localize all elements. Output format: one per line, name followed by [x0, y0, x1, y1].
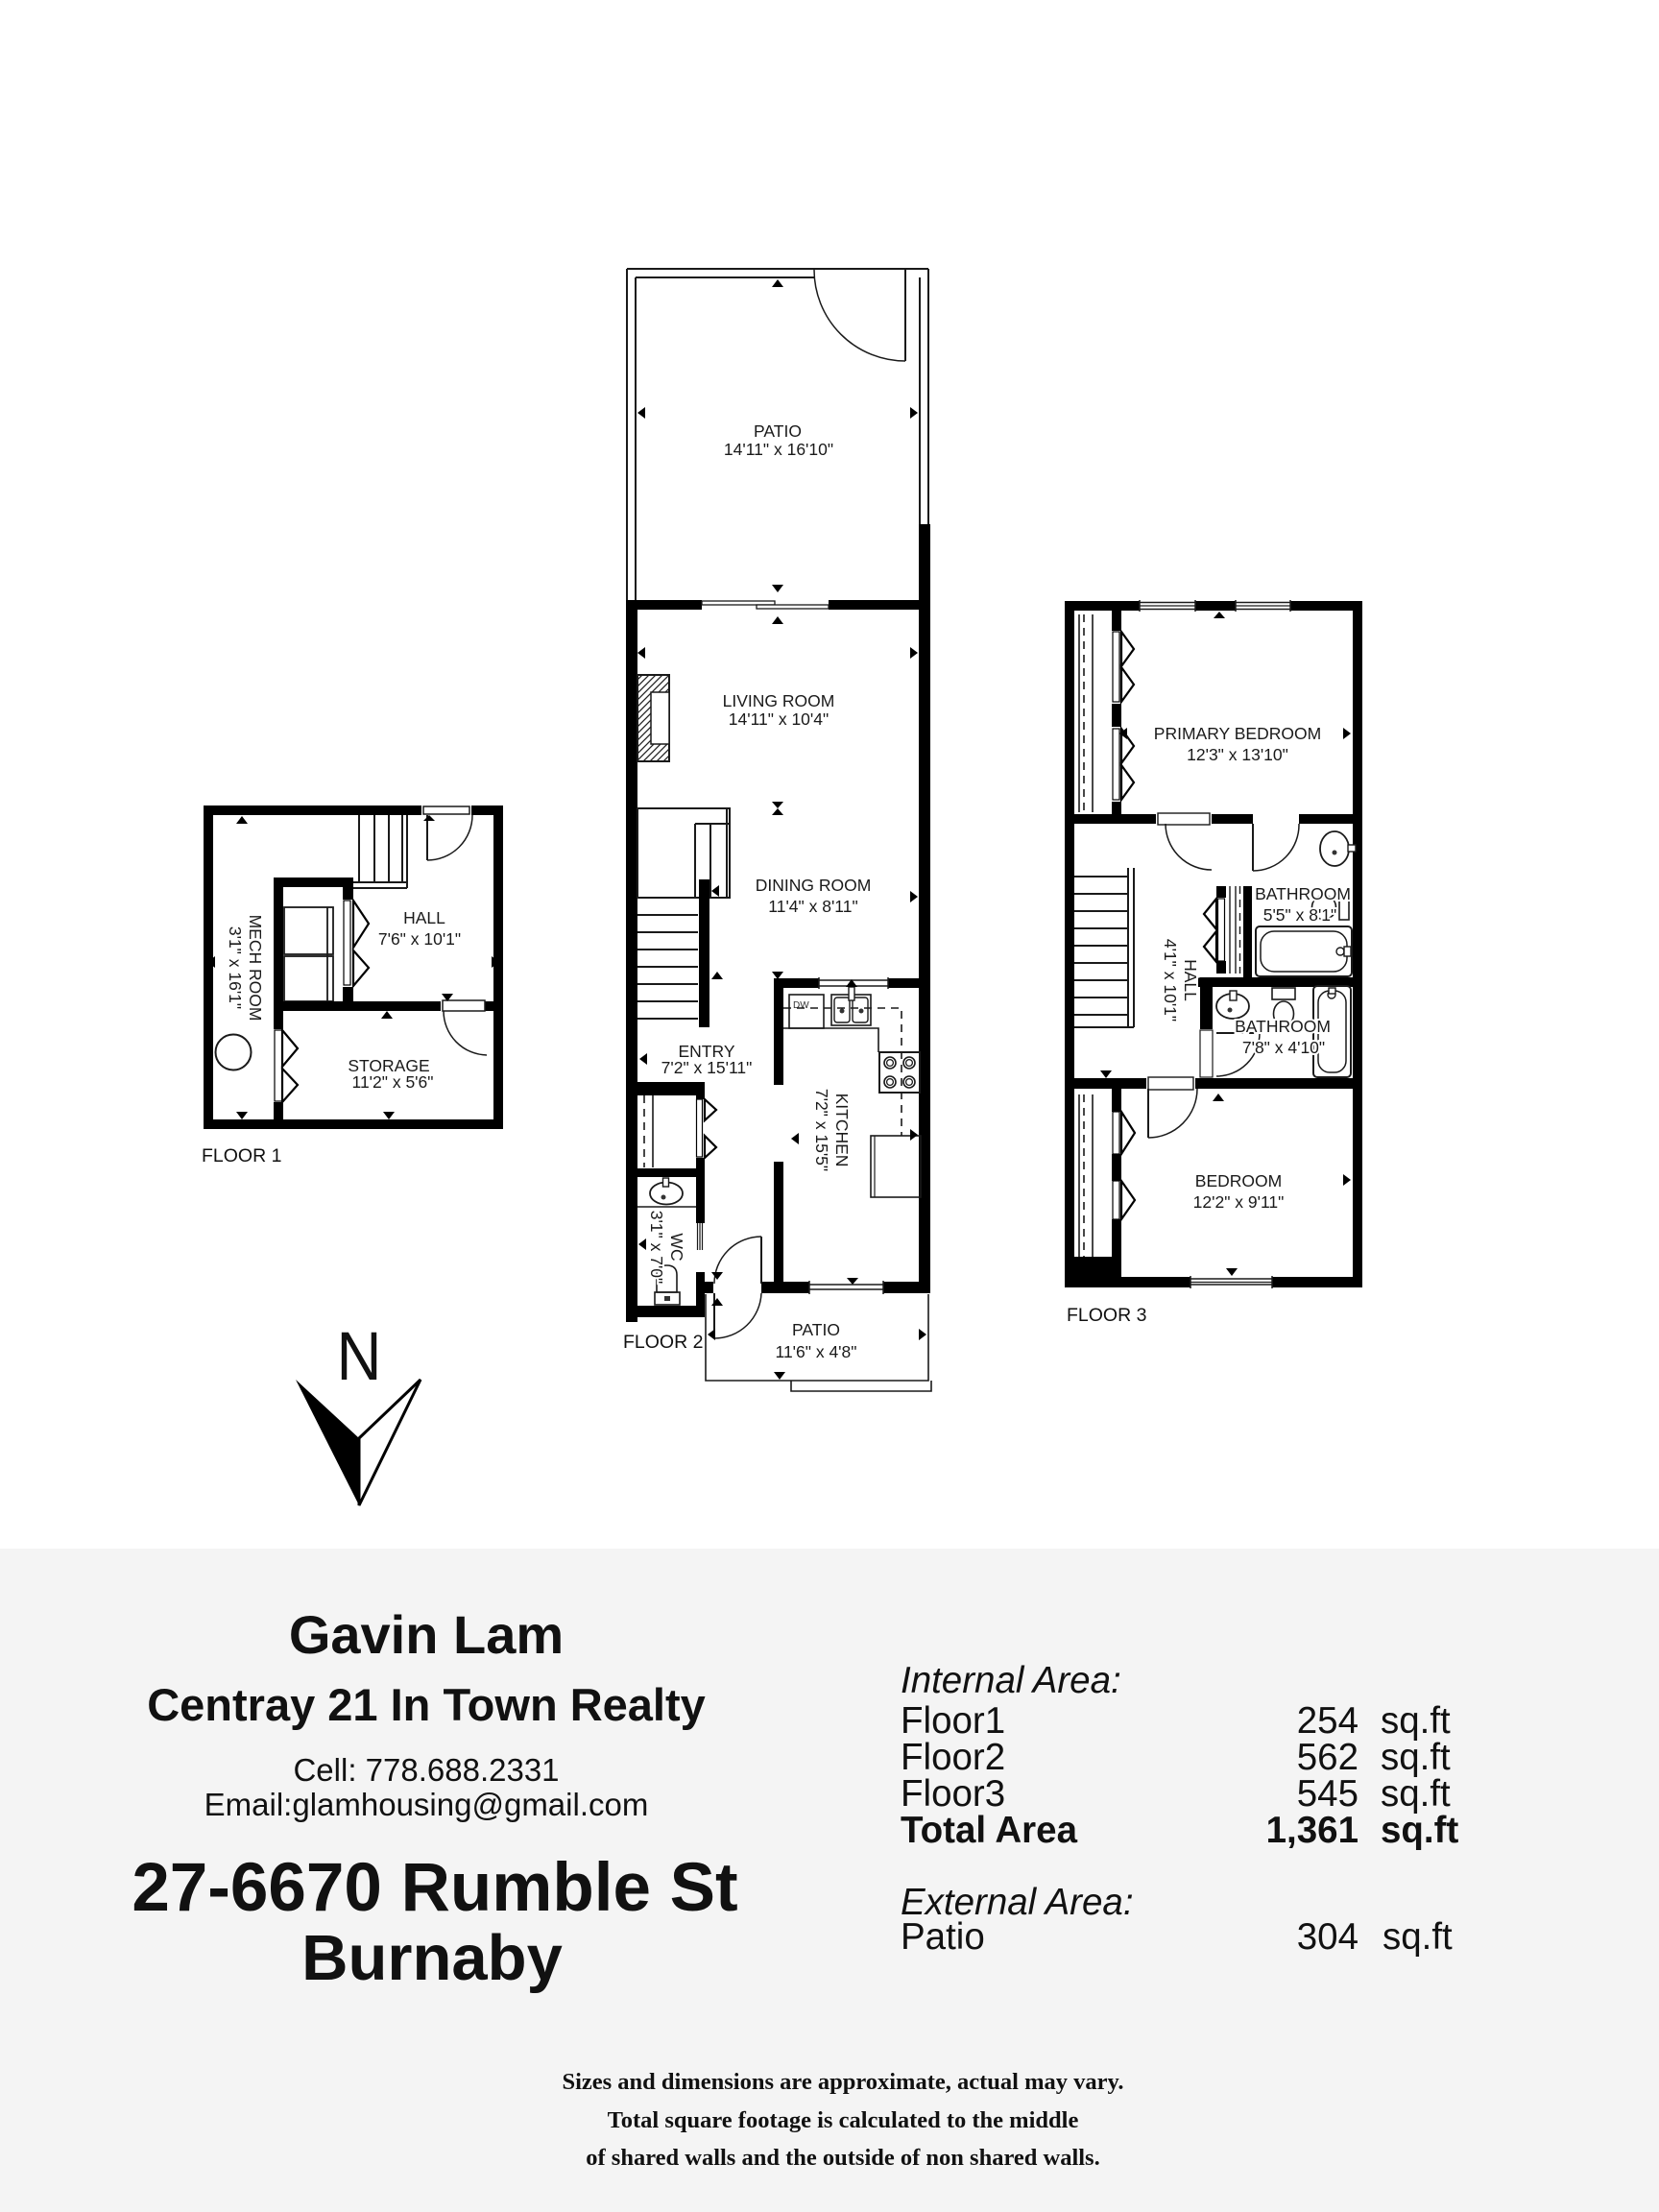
svg-text:4'1" x 10'1": 4'1" x 10'1"	[1161, 939, 1180, 1022]
svg-text:BATHROOM: BATHROOM	[1235, 1017, 1331, 1036]
svg-text:Internal Area:: Internal Area:	[901, 1660, 1121, 1701]
svg-text:Centray 21 In Town Realty: Centray 21 In Town Realty	[147, 1679, 706, 1730]
svg-text:BEDROOM: BEDROOM	[1195, 1171, 1282, 1190]
svg-text:Gavin Lam: Gavin Lam	[289, 1604, 564, 1665]
svg-text:562: 562	[1297, 1737, 1358, 1778]
svg-text:DW: DW	[793, 1000, 809, 1011]
svg-text:Total square footage is calcul: Total square footage is calculated to th…	[608, 2107, 1079, 2133]
svg-text:Burnaby: Burnaby	[301, 1922, 563, 1994]
svg-text:PRIMARY BEDROOM: PRIMARY BEDROOM	[1154, 724, 1321, 743]
svg-text:11'6" x 4'8": 11'6" x 4'8"	[776, 1342, 857, 1361]
svg-text:Floor2: Floor2	[901, 1737, 1005, 1778]
svg-text:PATIO: PATIO	[792, 1320, 840, 1339]
svg-text:Floor1: Floor1	[901, 1700, 1005, 1742]
svg-text:11'2" x 5'6": 11'2" x 5'6"	[352, 1072, 434, 1092]
svg-text:304: 304	[1297, 1916, 1358, 1958]
svg-text:Sizes and dimensions are appro: Sizes and dimensions are approximate, ac…	[562, 2069, 1123, 2095]
svg-text:Cell: 778.688.2331: Cell: 778.688.2331	[293, 1752, 559, 1788]
svg-text:MECH ROOM: MECH ROOM	[246, 915, 265, 1022]
svg-text:KITCHEN: KITCHEN	[832, 1094, 852, 1167]
svg-text:14'11" x 16'10": 14'11" x 16'10"	[724, 440, 833, 459]
svg-text:Patio: Patio	[901, 1916, 985, 1958]
svg-text:254: 254	[1297, 1700, 1358, 1742]
svg-text:N: N	[337, 1319, 382, 1395]
svg-text:sq.ft: sq.ft	[1381, 1773, 1451, 1815]
svg-text:DINING ROOM: DINING ROOM	[756, 876, 872, 895]
svg-text:Email:glamhousing@gmail.com: Email:glamhousing@gmail.com	[204, 1787, 649, 1822]
svg-text:5'5" x 8'1": 5'5" x 8'1"	[1263, 905, 1337, 925]
svg-text:sq.ft: sq.ft	[1381, 1700, 1451, 1742]
svg-text:HALL: HALL	[1181, 959, 1200, 1001]
svg-text:14'11" x 10'4": 14'11" x 10'4"	[729, 709, 829, 729]
svg-text:3'1" x 16'1": 3'1" x 16'1"	[226, 926, 245, 1009]
svg-text:545: 545	[1297, 1773, 1358, 1815]
svg-text:HALL: HALL	[403, 908, 445, 927]
svg-text:FLOOR 1: FLOOR 1	[202, 1145, 281, 1166]
svg-text:11'4" x 8'11": 11'4" x 8'11"	[768, 897, 857, 916]
svg-text:WC: WC	[667, 1233, 686, 1261]
svg-text:of shared walls and the outsid: of shared walls and the outside of non s…	[586, 2145, 1099, 2171]
svg-text:PATIO: PATIO	[754, 421, 802, 441]
svg-text:7'2" x 15'11": 7'2" x 15'11"	[661, 1058, 753, 1077]
svg-text:Floor3: Floor3	[901, 1773, 1005, 1815]
svg-text:LIVING ROOM: LIVING ROOM	[723, 691, 835, 710]
svg-text:sq.ft: sq.ft	[1381, 1737, 1451, 1778]
svg-text:FLOOR 3: FLOOR 3	[1067, 1305, 1146, 1326]
svg-text:3'1" x 7'0": 3'1" x 7'0"	[647, 1211, 666, 1285]
svg-text:12'2" x 9'11": 12'2" x 9'11"	[1193, 1192, 1285, 1212]
svg-text:BATHROOM: BATHROOM	[1255, 884, 1351, 903]
svg-text:7'6" x 10'1": 7'6" x 10'1"	[378, 929, 461, 949]
svg-text:sq.ft: sq.ft	[1381, 1810, 1458, 1851]
svg-text:sq.ft: sq.ft	[1382, 1916, 1453, 1958]
svg-text:7'2" x 15'5": 7'2" x 15'5"	[812, 1089, 831, 1171]
svg-text:1,361: 1,361	[1266, 1810, 1358, 1851]
svg-text:Total Area: Total Area	[901, 1810, 1078, 1851]
svg-text:27-6670 Rumble St: 27-6670 Rumble St	[132, 1850, 737, 1926]
svg-text:FLOOR 2: FLOOR 2	[623, 1332, 703, 1353]
svg-text:12'3" x 13'10": 12'3" x 13'10"	[1187, 745, 1288, 764]
svg-text:7'8" x 4'10": 7'8" x 4'10"	[1242, 1038, 1325, 1057]
